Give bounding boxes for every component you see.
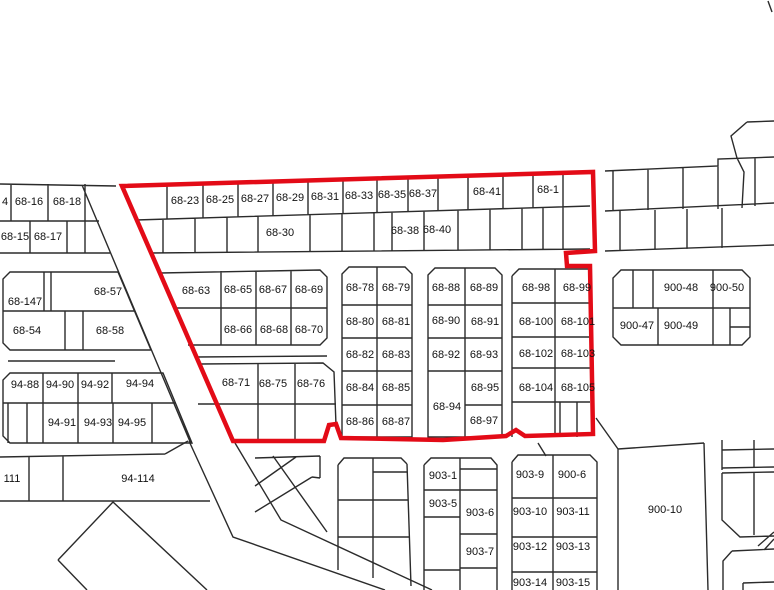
- parcel-label-903-6: 903-6: [466, 507, 494, 519]
- parcel-label-68-101: 68-101: [561, 316, 595, 328]
- parcel-label-68-99: 68-99: [563, 282, 591, 294]
- parcel-label-68-89: 68-89: [470, 282, 498, 294]
- parcel-label-903-7: 903-7: [466, 546, 494, 558]
- parcel-label-94-92: 94-92: [81, 379, 109, 391]
- map-viewport: 468-1668-1868-1568-1768-14768-5768-5468-…: [0, 0, 774, 590]
- parcel-label-68-100: 68-100: [519, 316, 553, 328]
- parcel-label-68-54: 68-54: [13, 325, 41, 337]
- parcel-label-68-15: 68-15: [1, 231, 29, 243]
- parcel-label-68-90: 68-90: [432, 315, 460, 327]
- parcel-label-68-57: 68-57: [94, 286, 122, 298]
- parcel-label-68-80: 68-80: [346, 316, 374, 328]
- parcel-label-903-5: 903-5: [429, 498, 457, 510]
- parcel-label-68-93: 68-93: [470, 349, 498, 361]
- road-lines-southwest: [0, 441, 432, 590]
- parcel-label-68-102: 68-102: [519, 348, 553, 360]
- parcel-label-900-6: 900-6: [558, 469, 586, 481]
- parcel-label-68-37: 68-37: [409, 188, 437, 200]
- parcel-label-68-81: 68-81: [382, 316, 410, 328]
- parcel-label-68-71: 68-71: [222, 377, 250, 389]
- parcel-label-68-65: 68-65: [224, 284, 252, 296]
- parcel-label-900-10: 900-10: [648, 504, 682, 516]
- parcel-label-68-35: 68-35: [378, 189, 406, 201]
- parcel-label-903-12: 903-12: [513, 541, 547, 553]
- highlighted-area-boundary[interactable]: [122, 172, 595, 441]
- parcel-label-94-90: 94-90: [46, 379, 74, 391]
- parcel-label-68-29: 68-29: [276, 192, 304, 204]
- parcel-label-68-91: 68-91: [471, 316, 499, 328]
- parcel-label-68-78: 68-78: [346, 282, 374, 294]
- parcel-label-94-88: 94-88: [11, 379, 39, 391]
- parcel-label-68-94: 68-94: [433, 401, 461, 413]
- parcel-label-94-94: 94-94: [126, 378, 154, 390]
- parcel-label-903-10: 903-10: [513, 506, 547, 518]
- parcel-label-903-14: 903-14: [513, 577, 547, 589]
- parcel-label-903-15: 903-15: [556, 577, 590, 589]
- parcel-label-68-103: 68-103: [561, 348, 595, 360]
- parcel-label-68-63: 68-63: [182, 285, 210, 297]
- parcel-label-900-48: 900-48: [664, 282, 698, 294]
- parcel-label-68-75: 68-75: [259, 378, 287, 390]
- parcel-label-68-18: 68-18: [53, 196, 81, 208]
- parcel-lines-north-strip: [136, 1, 774, 253]
- parcel-label-68-76: 68-76: [297, 378, 325, 390]
- parcel-label-68-82: 68-82: [346, 349, 374, 361]
- parcel-label-900-50: 900-50: [710, 282, 744, 294]
- parcel-label-68-68: 68-68: [260, 324, 288, 336]
- parcel-label-68-16: 68-16: [15, 196, 43, 208]
- parcel-label-94-95: 94-95: [118, 417, 146, 429]
- parcel-label-68-69: 68-69: [295, 284, 323, 296]
- parcel-label-68-40: 68-40: [423, 224, 451, 236]
- parcel-label-68-23: 68-23: [171, 195, 199, 207]
- parcel-label-68-58: 68-58: [96, 325, 124, 337]
- parcel-label-68-25: 68-25: [206, 194, 234, 206]
- parcel-label-68-30: 68-30: [266, 227, 294, 239]
- parcel-label-94-93: 94-93: [84, 417, 112, 429]
- parcel-label-68-27: 68-27: [241, 193, 269, 205]
- parcel-label-903-13: 903-13: [556, 541, 590, 553]
- parcel-label-68-85: 68-85: [382, 382, 410, 394]
- parcel-label-68-105: 68-105: [561, 382, 595, 394]
- parcel-label-68-92: 68-92: [432, 349, 460, 361]
- parcel-label-903-11: 903-11: [556, 506, 589, 518]
- parcel-label-94-114: 94-114: [121, 473, 154, 485]
- parcel-label-900-47: 900-47: [620, 320, 654, 332]
- parcel-label-903-1: 903-1: [429, 470, 457, 482]
- parcel-label-903-9: 903-9: [516, 469, 544, 481]
- parcel-label-68-17: 68-17: [34, 231, 62, 243]
- parcel-label-68-1: 68-1: [537, 184, 559, 196]
- parcel-label-68-88: 68-88: [432, 282, 460, 294]
- parcel-label-68-66: 68-66: [224, 324, 252, 336]
- parcel-label-68-86: 68-86: [346, 416, 374, 428]
- parcel-lines-east: [596, 270, 774, 590]
- parcel-label-68-33: 68-33: [345, 190, 373, 202]
- parcel-label-68-83: 68-83: [382, 349, 410, 361]
- parcel-label-68-67: 68-67: [259, 284, 287, 296]
- parcel-label-68-98: 68-98: [522, 282, 550, 294]
- parcel-label-68-79: 68-79: [382, 282, 410, 294]
- parcel-label-68-84: 68-84: [346, 382, 374, 394]
- parcel-label-68-38: 68-38: [391, 225, 419, 237]
- parcel-label-111: 111: [4, 473, 21, 485]
- cadastral-map-canvas[interactable]: 468-1668-1868-1568-1768-14768-5768-5468-…: [0, 0, 774, 590]
- parcel-label-900-49: 900-49: [664, 320, 698, 332]
- parcel-lines-south-center: [255, 455, 597, 590]
- parcel-label-68-104: 68-104: [519, 382, 553, 394]
- parcel-label-68-70: 68-70: [295, 324, 323, 336]
- parcel-label-68-87: 68-87: [382, 416, 410, 428]
- parcel-label-68-95: 68-95: [471, 382, 499, 394]
- parcel-label-68-97: 68-97: [470, 415, 498, 427]
- parcel-label-94-91: 94-91: [48, 417, 76, 429]
- parcel-label-68-41: 68-41: [473, 186, 501, 198]
- parcel-label-68-147: 68-147: [8, 296, 42, 308]
- parcel-label-4: 4: [2, 196, 8, 208]
- parcel-label-68-31: 68-31: [311, 191, 339, 203]
